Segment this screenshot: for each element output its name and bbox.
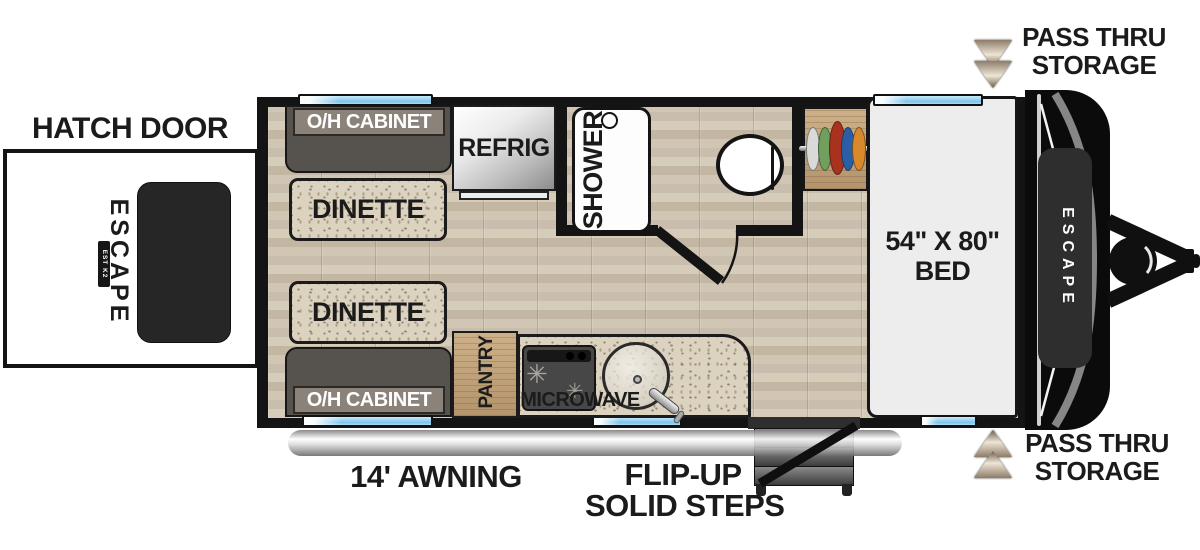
pass-thru-storage-top: PASS THRU STORAGE: [1013, 23, 1175, 79]
step-foot: [842, 484, 852, 496]
window-top-bed: [873, 94, 983, 106]
hanger-row: [803, 121, 868, 179]
bathroom-door-swing-icon: [550, 100, 810, 300]
window-bottom-dinette: [302, 415, 433, 427]
brand-rear-wordmark: ESCAPE: [107, 177, 133, 347]
dinette-bottom-label: DINETTE: [312, 297, 424, 328]
oh-cabinet-top: O/H CABINET: [293, 108, 445, 136]
trailer-hitch-icon: [1108, 205, 1200, 317]
chevron-down: [974, 61, 1012, 88]
pass-thru-top-line1: PASS THRU: [1013, 23, 1175, 51]
stove-knob-icon: [566, 352, 574, 360]
steps-label: FLIP-UP SOLID STEPS: [585, 459, 781, 521]
burner-icon: ✳: [526, 359, 548, 390]
dinette-top-label: DINETTE: [312, 194, 424, 225]
floorplan-canvas: HATCH DOOR ESCAPE EST K2 1972 O/H CABINE…: [0, 0, 1200, 550]
pantry-label: PANTRY: [476, 327, 494, 417]
pass-thru-arrow-up-icon: [974, 430, 1012, 478]
sink-drain-icon: [633, 375, 642, 384]
brand-rear-badge: EST K2 1972: [98, 241, 110, 287]
oh-cabinet-bottom: O/H CABINET: [293, 386, 445, 414]
hatch-mat: [137, 182, 231, 343]
stove-knob-icon: [578, 352, 586, 360]
toilet-seam: [771, 146, 774, 190]
steps-label-line2: SOLID STEPS: [585, 490, 781, 521]
clothes-hanger-icon: [852, 127, 866, 171]
bed-label: BED: [915, 257, 971, 287]
awning-label: 14' AWNING: [330, 459, 542, 495]
toilet-icon: [716, 134, 784, 196]
hatch-door-label: HATCH DOOR: [25, 112, 235, 146]
pass-thru-arrow-down-icon: [974, 40, 1012, 88]
dinette-table-bottom: DINETTE: [289, 281, 447, 344]
microwave-label: MICROWAVE: [519, 389, 641, 412]
steps-label-line1: FLIP-UP: [585, 459, 781, 490]
oh-cabinet-bottom-label: O/H CABINET: [307, 389, 432, 412]
pass-thru-bottom-line2: STORAGE: [1013, 457, 1181, 485]
dinette-table-top: DINETTE: [289, 178, 447, 241]
oh-cabinet-top-label: O/H CABINET: [307, 111, 432, 134]
refrigerator-vent: [459, 191, 549, 200]
refrig-label: REFRIG: [458, 134, 549, 163]
window-bottom-bed: [920, 415, 977, 427]
pass-thru-top-line2: STORAGE: [1013, 51, 1175, 79]
pass-thru-storage-bottom: PASS THRU STORAGE: [1013, 429, 1181, 485]
window-top-dinette: [298, 94, 433, 106]
bed-size-label: 54" X 80": [885, 227, 999, 257]
refrigerator: REFRIG: [452, 105, 556, 191]
brand-front-wordmark: ESCAPE: [1056, 168, 1076, 348]
pass-thru-bottom-line1: PASS THRU: [1013, 429, 1181, 457]
bed: 54" X 80" BED: [867, 96, 1018, 418]
